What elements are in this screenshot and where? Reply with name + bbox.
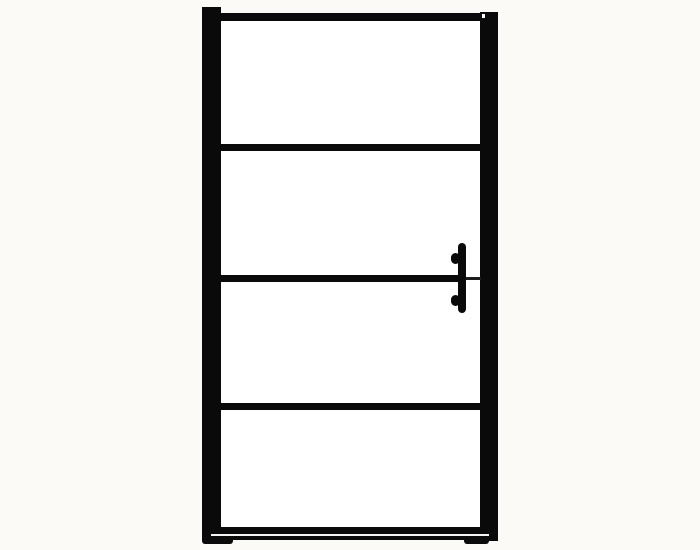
door-frame-right-post [480,12,498,541]
crossbar-3 [220,403,481,410]
bottom-left-foot [202,537,233,544]
door-frame-top-bar [219,13,482,21]
crossbar-1 [220,144,481,151]
crossbar-2 [220,275,465,282]
bottom-rail [203,527,497,540]
door-frame-left-post [202,7,221,541]
product-photo [0,0,700,550]
bottom-rail-highlight [211,534,489,536]
glass-panel [221,21,480,527]
crossbar-2-thin-extension [464,277,481,280]
door-handle-mount-top [451,253,460,264]
door-handle-mount-bottom [451,295,460,306]
bottom-right-foot [464,537,489,544]
